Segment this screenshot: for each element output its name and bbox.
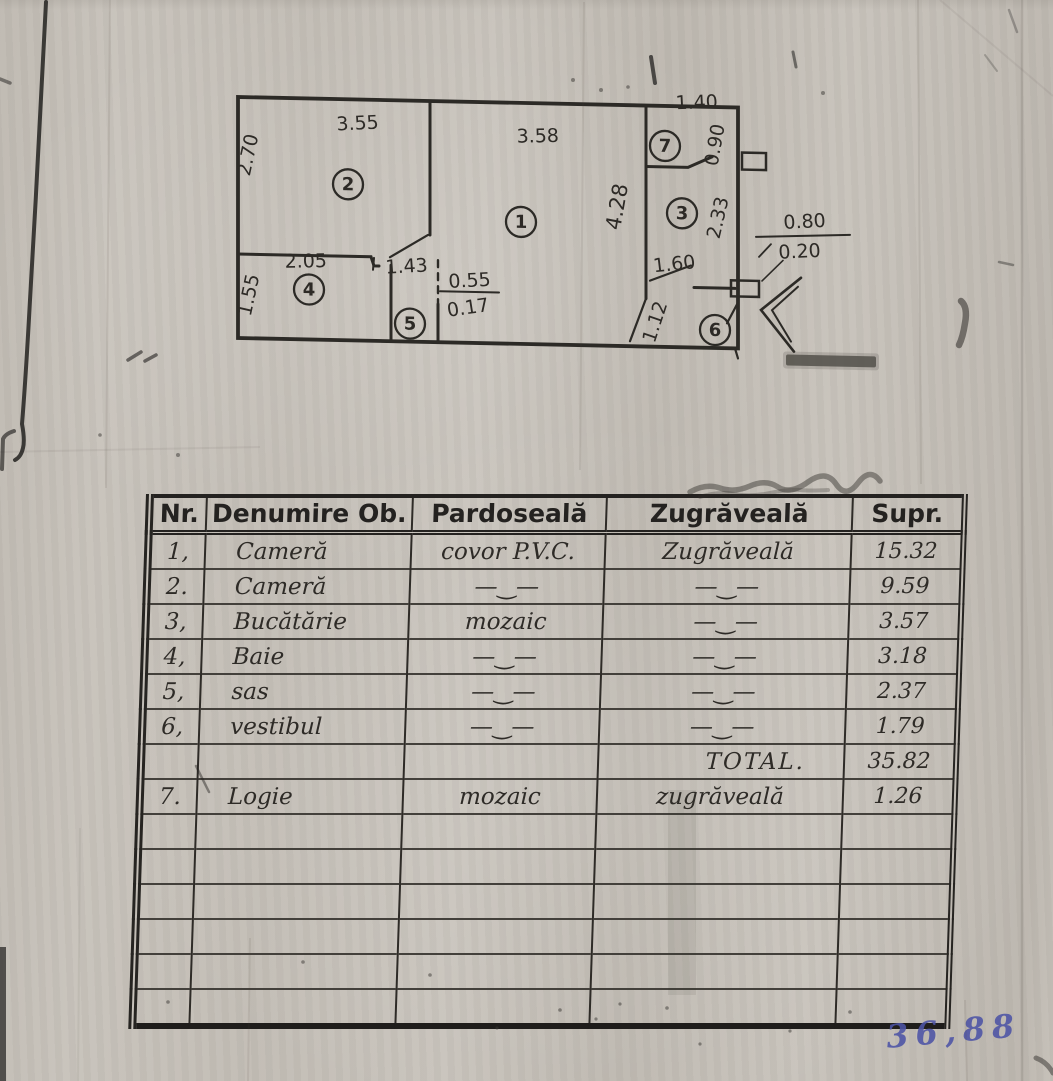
table-row — [132, 989, 948, 1026]
cell-supr — [841, 814, 954, 849]
cell-nr: 7. — [139, 779, 197, 814]
dim-label: 1.60 — [652, 251, 697, 277]
cell-denumire — [194, 849, 401, 884]
cell-denumire: Baie — [201, 639, 408, 674]
cell-zugraveala: —‿— — [603, 569, 850, 604]
table-row — [134, 954, 950, 989]
cell-denumire: Bucătărie — [202, 604, 409, 639]
table-header: Nr. Denumire Ob. Pardoseală Zugrăveală S… — [149, 496, 965, 533]
room-1-circle: 1 — [506, 207, 536, 238]
dim-label: 3.58 — [516, 125, 559, 148]
cell-pardoseala: —‿— — [407, 639, 602, 674]
header-supr: Supr. — [852, 496, 965, 533]
cell-nr: 5, — [143, 674, 201, 709]
cell-zugraveala: —‿— — [600, 674, 847, 709]
table-row — [138, 814, 954, 849]
room-1-label: 1 — [515, 212, 528, 233]
cell-supr: 2.37 — [846, 674, 959, 709]
cell-denumire — [191, 954, 398, 989]
table-row: 2. Cameră —‿— —‿— 9.59 — [146, 569, 962, 604]
room-7-label: 7 — [659, 136, 672, 157]
cell-denumire — [198, 744, 405, 779]
cell-nr: 3, — [145, 604, 203, 639]
cell-pardoseala — [395, 989, 590, 1026]
dim-label: 0.17 — [445, 294, 490, 322]
window-room7 — [742, 153, 766, 171]
cell-supr: 1.26 — [842, 779, 955, 814]
table-row: 1, Cameră covor P.V.C. Zugrăveală 15.32 — [148, 533, 964, 570]
table-row: 7. Logie mozaic zugrăveală 1.26 — [139, 779, 955, 814]
cell-nr — [132, 989, 190, 1026]
room-7-circle: 7 — [650, 131, 680, 162]
measurement-table-wrap: Nr. Denumire Ob. Pardoseală Zugrăveală S… — [128, 494, 968, 1029]
cell-supr: 35.82 — [844, 744, 957, 779]
header-pardoseala: Pardoseală — [412, 496, 607, 533]
dim-tick — [373, 258, 374, 270]
table-row: 3, Bucătărie mozaic —‿— 3.57 — [145, 604, 961, 639]
dim-label: 0.80 — [783, 210, 827, 234]
cell-nr: 1, — [148, 533, 206, 570]
dim-label: 2.33 — [703, 194, 734, 240]
dim-label: 4.28 — [601, 181, 633, 232]
cell-denumire: vestibul — [199, 709, 406, 744]
scanned-document: { "plan": { "rooms": [ {"label": "1"}, {… — [0, 0, 1053, 1081]
cell-zugraveala — [594, 849, 841, 884]
room-5-circle: 5 — [395, 308, 425, 339]
cell-supr — [839, 884, 952, 919]
smudge-bar — [786, 354, 876, 367]
cell-supr — [840, 849, 953, 884]
cell-zugraveala — [591, 954, 838, 989]
cell-pardoseala: covor P.V.C. — [411, 533, 606, 570]
chevron-mark — [761, 277, 879, 370]
header-nr: Nr. — [149, 496, 207, 533]
cell-zugraveala: zugrăveală — [596, 779, 843, 814]
cell-pardoseala — [401, 814, 596, 849]
cell-denumire: Cameră — [203, 569, 410, 604]
dim-label: 1.40 — [675, 91, 718, 114]
measurement-table: Nr. Denumire Ob. Pardoseală Zugrăveală S… — [128, 494, 968, 1029]
cell-nr — [136, 884, 194, 919]
dim-label: 3.55 — [336, 111, 380, 135]
dim-label: 0.90 — [701, 122, 730, 168]
room-3-circle: 3 — [667, 198, 697, 229]
room-2-label: 2 — [342, 174, 355, 195]
cell-nr — [138, 814, 196, 849]
cell-nr — [141, 744, 199, 779]
cell-pardoseala — [400, 849, 595, 884]
header-denumire: Denumire Ob. — [206, 496, 413, 533]
cell-nr: 2. — [146, 569, 204, 604]
cell-supr: 1.79 — [845, 709, 958, 744]
cell-denumire — [192, 919, 399, 954]
cell-pardoseala — [399, 884, 594, 919]
cell-pardoseala: —‿— — [409, 569, 604, 604]
room-5-label: 5 — [404, 313, 417, 334]
cell-pardoseala — [398, 919, 593, 954]
bottom-right-corner-mark — [1036, 1058, 1053, 1073]
cell-nr: 6, — [142, 709, 200, 744]
cell-nr — [134, 954, 192, 989]
table-row: 6, vestibul —‿— —‿— 1.79 — [142, 709, 958, 744]
cell-nr: 4, — [144, 639, 202, 674]
cell-supr — [838, 919, 951, 954]
floor-plan: 1 2 3 4 5 6 7 3.55 2.70 3.58 1.40 0.90 4… — [233, 81, 879, 371]
table-body: 1, Cameră covor P.V.C. Zugrăveală 15.32 … — [132, 533, 963, 1027]
room-4-circle: 4 — [294, 274, 324, 305]
cell-pardoseala: —‿— — [406, 674, 601, 709]
cell-zugraveala: —‿— — [601, 639, 848, 674]
dim-label: 0.55 — [448, 269, 492, 293]
cell-denumire — [189, 989, 396, 1026]
cell-zugraveala — [589, 989, 836, 1026]
cell-supr — [837, 954, 950, 989]
room-6-label: 6 — [709, 320, 722, 341]
cell-nr — [137, 849, 195, 884]
bottom-left-edge — [0, 947, 6, 1081]
table-row: TOTAL. 35.82 — [141, 744, 957, 779]
cell-denumire: Logie — [196, 779, 403, 814]
table-row — [135, 919, 951, 954]
dim-label: 1.43 — [385, 255, 429, 279]
header-zugraveala: Zugrăveală — [606, 496, 853, 533]
table-row: 4, Baie —‿— —‿— 3.18 — [144, 639, 960, 674]
cell-pardoseala: mozaic — [402, 779, 597, 814]
room-2-circle: 2 — [333, 169, 363, 200]
floor-plan-svg: 1 2 3 4 5 6 7 3.55 2.70 3.58 1.40 0.90 4… — [0, 0, 1053, 480]
room-3-label: 3 — [676, 203, 689, 224]
cell-pardoseala: —‿— — [405, 709, 600, 744]
cell-supr: 15.32 — [851, 533, 964, 570]
cell-denumire — [195, 814, 402, 849]
cell-denumire — [193, 884, 400, 919]
cell-supr: 9.59 — [849, 569, 962, 604]
table-row — [136, 884, 952, 919]
cell-pardoseala: mozaic — [408, 604, 603, 639]
room-6-circle: 6 — [700, 315, 730, 346]
cell-zugraveala — [593, 884, 840, 919]
cell-supr: 3.57 — [848, 604, 961, 639]
room-4-label: 4 — [303, 279, 316, 300]
cell-zugraveala: —‿— — [599, 709, 846, 744]
cell-denumire: Cameră — [205, 533, 412, 570]
dim-label: 0.20 — [778, 240, 822, 264]
cell-pardoseala — [404, 744, 599, 779]
cell-zugraveala — [595, 814, 842, 849]
table-row — [137, 849, 953, 884]
dim-label: 2.05 — [284, 250, 327, 273]
cell-zugraveala: Zugrăveală — [605, 533, 852, 570]
cell-pardoseala — [397, 954, 592, 989]
cell-nr — [135, 919, 193, 954]
cell-supr: 3.18 — [847, 639, 960, 674]
cell-zugraveala — [592, 919, 839, 954]
cell-zugraveala: TOTAL. — [598, 744, 845, 779]
table-row: 5, sas —‿— —‿— 2.37 — [143, 674, 959, 709]
cell-zugraveala: —‿— — [602, 604, 849, 639]
cell-denumire: sas — [200, 674, 407, 709]
